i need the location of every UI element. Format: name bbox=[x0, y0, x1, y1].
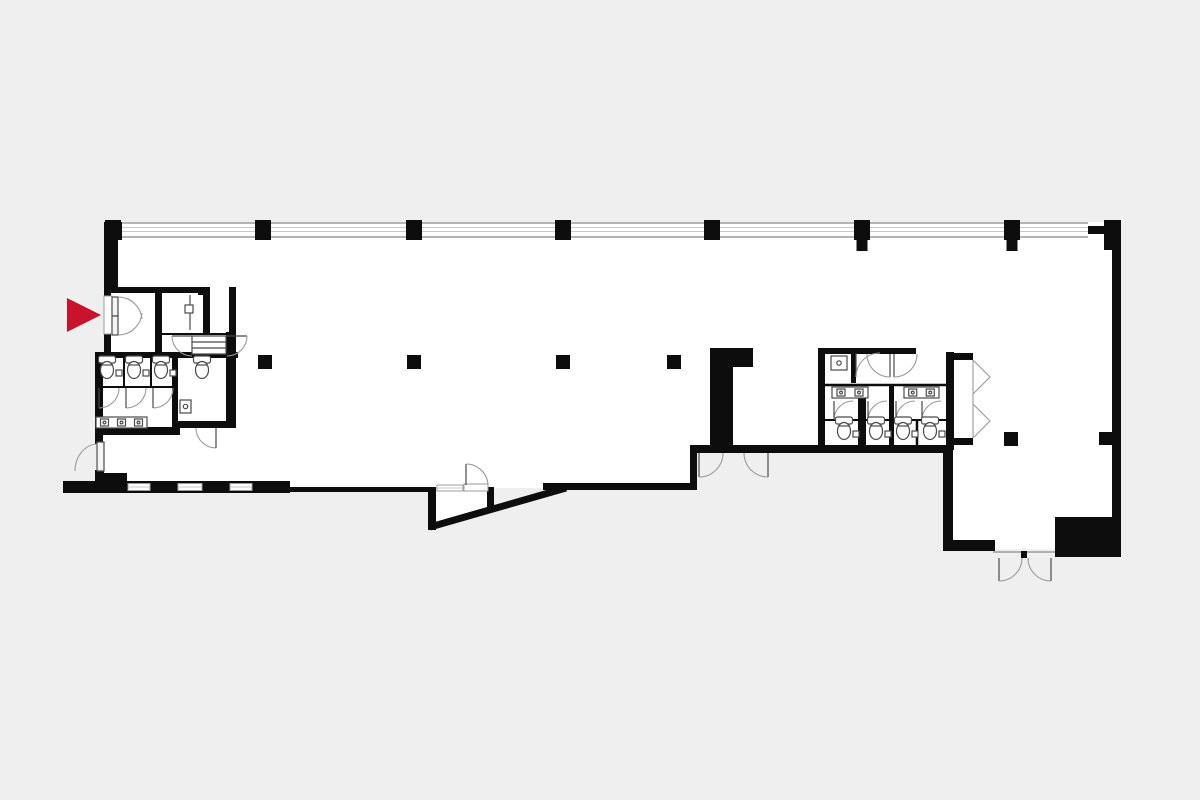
southwest-windows bbox=[128, 484, 252, 491]
floor-plan-drawing bbox=[0, 0, 1200, 800]
service-core-block bbox=[1055, 517, 1121, 557]
floor-plan-stage bbox=[0, 0, 1200, 800]
